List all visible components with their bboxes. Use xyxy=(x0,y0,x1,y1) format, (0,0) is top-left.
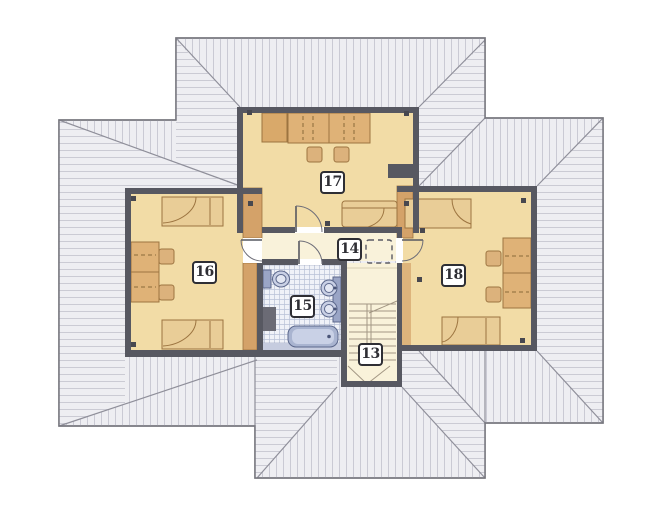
chair xyxy=(159,249,174,264)
room-label-15: 15 xyxy=(290,295,315,318)
bathtub-drain xyxy=(327,335,331,339)
room-label-13: 13 xyxy=(358,343,383,366)
cabinet xyxy=(262,113,287,142)
chair xyxy=(486,251,501,266)
hall-14-floor xyxy=(262,233,397,261)
chair xyxy=(307,147,322,162)
room-label-16: 16 xyxy=(192,261,217,284)
toilet-tank xyxy=(263,270,271,288)
chair xyxy=(334,147,349,162)
room-label-17: 17 xyxy=(320,171,345,194)
duct xyxy=(263,307,276,331)
floor-plan-canvas: 13 14 15 16 17 18 xyxy=(0,0,660,520)
chair xyxy=(486,287,501,302)
floor-plan-drawing xyxy=(0,0,660,520)
room-label-14: 14 xyxy=(337,238,362,261)
room-label-18: 18 xyxy=(441,264,466,287)
chimney xyxy=(388,164,419,178)
bed xyxy=(442,317,500,345)
chair xyxy=(159,285,174,300)
bed xyxy=(342,201,397,227)
